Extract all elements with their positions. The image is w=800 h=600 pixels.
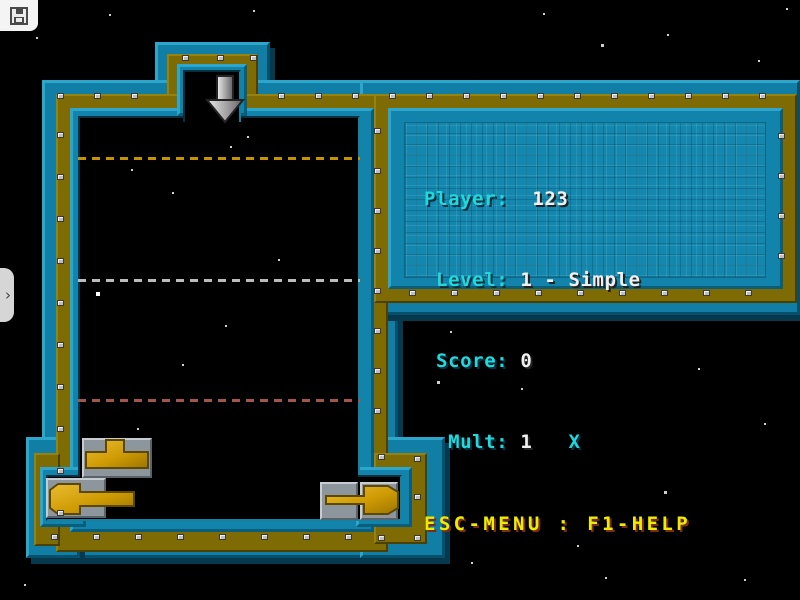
rivet bbox=[57, 468, 64, 474]
t-piece-gold bbox=[82, 438, 152, 478]
rivet bbox=[135, 534, 142, 540]
star bbox=[786, 8, 788, 10]
rivet bbox=[661, 290, 668, 296]
star bbox=[109, 14, 111, 16]
rivet bbox=[374, 248, 381, 254]
rivet bbox=[577, 290, 584, 296]
drop-arrow-icon bbox=[202, 74, 248, 126]
rivet bbox=[611, 93, 618, 99]
rivet bbox=[778, 253, 785, 259]
hud-help-line: ESC-MENU : F1-HELP bbox=[424, 511, 691, 538]
star bbox=[543, 13, 545, 15]
score-value: 0 bbox=[508, 350, 532, 372]
star bbox=[278, 259, 280, 261]
star bbox=[36, 37, 38, 39]
rivet bbox=[182, 55, 189, 61]
player-value: 123 bbox=[508, 188, 568, 210]
star bbox=[225, 325, 227, 327]
mult-suffix: X bbox=[568, 431, 580, 453]
rivet bbox=[57, 174, 64, 180]
rivet bbox=[648, 93, 655, 99]
rivet bbox=[574, 93, 581, 99]
rivet bbox=[414, 494, 421, 500]
star bbox=[24, 584, 26, 586]
star bbox=[182, 364, 184, 366]
dashed-line-1 bbox=[78, 157, 360, 160]
rivet bbox=[57, 342, 64, 348]
rivet bbox=[374, 288, 381, 294]
star bbox=[605, 577, 607, 579]
rivet bbox=[94, 93, 101, 99]
hud-mult-line: Mult: 1 X bbox=[424, 429, 691, 456]
rivet bbox=[374, 328, 381, 334]
rivet bbox=[535, 290, 542, 296]
rivet bbox=[537, 93, 544, 99]
rivet bbox=[374, 128, 381, 134]
star bbox=[253, 10, 255, 12]
rivet bbox=[315, 93, 322, 99]
rivet bbox=[745, 290, 752, 296]
chevron-right-icon: › bbox=[5, 286, 11, 304]
star bbox=[247, 136, 249, 138]
star bbox=[667, 34, 669, 36]
level-value: 1 - Simple bbox=[508, 269, 640, 291]
rivet bbox=[778, 173, 785, 179]
rivet bbox=[352, 93, 359, 99]
rivet bbox=[51, 534, 58, 540]
star bbox=[230, 146, 232, 148]
rivet bbox=[57, 216, 64, 222]
rivet bbox=[57, 258, 64, 264]
rivet bbox=[374, 408, 381, 414]
rivet bbox=[57, 426, 64, 432]
rivet bbox=[703, 290, 710, 296]
rivet bbox=[261, 534, 268, 540]
star bbox=[137, 428, 139, 430]
player-label: Player: bbox=[424, 188, 508, 210]
rivet bbox=[414, 535, 421, 541]
rivet bbox=[414, 456, 421, 462]
star bbox=[601, 44, 604, 47]
star bbox=[471, 562, 473, 564]
save-state-button[interactable] bbox=[0, 0, 38, 31]
rivet bbox=[778, 133, 785, 139]
hud-score-line: Score: 0 bbox=[424, 348, 691, 375]
rivet bbox=[619, 290, 626, 296]
star bbox=[172, 192, 174, 194]
hud-text-block: Player: 123 Level: 1 - Simple Score: 0 M… bbox=[424, 132, 691, 592]
score-label: Score: bbox=[424, 350, 508, 372]
rivet bbox=[378, 454, 385, 460]
star bbox=[577, 545, 579, 547]
rivet bbox=[685, 93, 692, 99]
hud-player-line: Player: 123 bbox=[424, 186, 691, 213]
rivet bbox=[493, 290, 500, 296]
rivet bbox=[57, 300, 64, 306]
star bbox=[131, 169, 133, 171]
rivet bbox=[219, 534, 226, 540]
floppy-disk-icon bbox=[9, 6, 29, 26]
hud-panel: Player: 123 Level: 1 - Simple Score: 0 M… bbox=[404, 122, 766, 278]
star bbox=[96, 292, 100, 296]
rivet bbox=[57, 384, 64, 390]
dashed-line-2 bbox=[78, 279, 360, 282]
star bbox=[450, 331, 452, 333]
rivet bbox=[378, 535, 385, 541]
rivet bbox=[426, 93, 433, 99]
rivet bbox=[500, 93, 507, 99]
star bbox=[744, 579, 746, 581]
rivet bbox=[759, 93, 766, 99]
star bbox=[437, 381, 440, 384]
level-label: Level: bbox=[424, 269, 508, 291]
rivet bbox=[57, 510, 64, 516]
rivet bbox=[57, 93, 64, 99]
rivet bbox=[722, 93, 729, 99]
star bbox=[758, 60, 760, 62]
rivet bbox=[250, 55, 257, 61]
rivet bbox=[278, 93, 285, 99]
rivet bbox=[57, 132, 64, 138]
rivet bbox=[131, 93, 138, 99]
game-screen[interactable]: Player: 123 Level: 1 - Simple Score: 0 M… bbox=[0, 0, 800, 600]
arrow-right-gold bbox=[318, 478, 402, 522]
rivet bbox=[409, 290, 416, 296]
rivet bbox=[217, 55, 224, 61]
star bbox=[664, 491, 667, 494]
mult-label: Mult: bbox=[424, 431, 508, 453]
star bbox=[698, 368, 700, 370]
rivet bbox=[374, 208, 381, 214]
rivet bbox=[345, 534, 352, 540]
side-drawer-toggle[interactable]: › bbox=[0, 268, 14, 322]
hud-level-line: Level: 1 - Simple bbox=[424, 267, 691, 294]
star bbox=[521, 388, 523, 390]
rivet bbox=[389, 93, 396, 99]
rivet bbox=[451, 290, 458, 296]
rivet bbox=[93, 534, 100, 540]
rivet bbox=[177, 534, 184, 540]
rivet bbox=[303, 534, 310, 540]
rivet bbox=[374, 368, 381, 374]
star bbox=[764, 423, 766, 425]
rivet bbox=[463, 93, 470, 99]
mult-value: 1 bbox=[508, 431, 568, 453]
rivet bbox=[778, 213, 785, 219]
dashed-line-3 bbox=[78, 399, 360, 402]
rivet bbox=[374, 168, 381, 174]
